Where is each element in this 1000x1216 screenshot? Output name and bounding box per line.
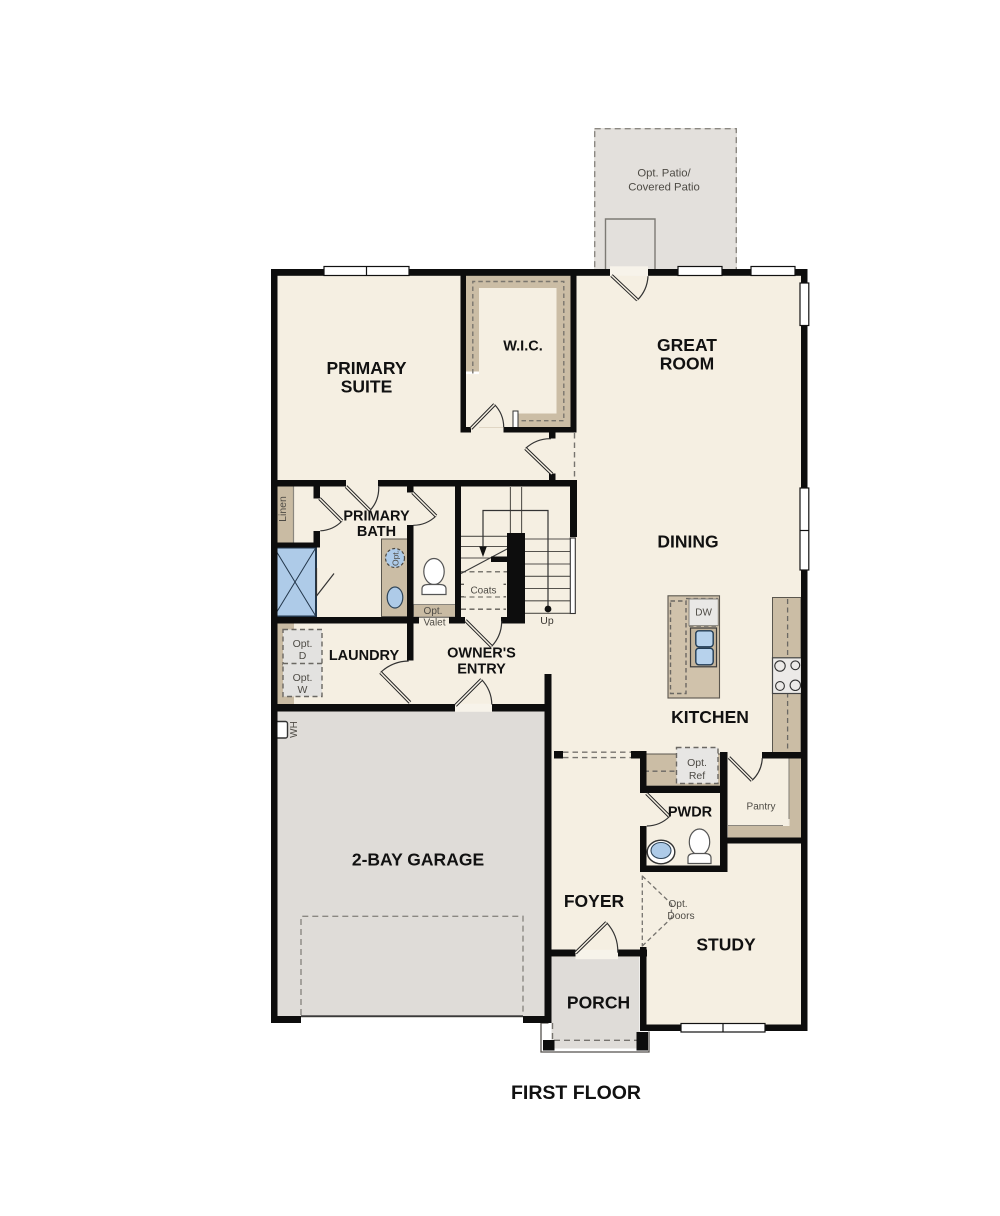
svg-text:Valet: Valet — [423, 618, 445, 629]
svg-text:LAUNDRY: LAUNDRY — [329, 648, 400, 664]
svg-text:PRIMARY: PRIMARY — [343, 509, 410, 525]
svg-text:Opt.: Opt. — [687, 757, 707, 769]
svg-text:STUDY: STUDY — [696, 935, 756, 955]
svg-text:BATH: BATH — [357, 524, 396, 540]
svg-text:OWNER'S: OWNER'S — [447, 646, 516, 662]
svg-text:Opt.: Opt. — [424, 606, 443, 617]
svg-text:KITCHEN: KITCHEN — [671, 707, 749, 727]
svg-text:Opt. Patio/: Opt. Patio/ — [637, 168, 691, 180]
svg-text:SUITE: SUITE — [341, 377, 393, 397]
svg-text:FIRST FLOOR: FIRST FLOOR — [511, 1082, 641, 1104]
svg-text:Ref: Ref — [689, 770, 705, 782]
svg-text:Doors: Doors — [667, 911, 694, 922]
svg-text:2-BAY GARAGE: 2-BAY GARAGE — [352, 850, 484, 870]
svg-text:FOYER: FOYER — [564, 891, 625, 911]
svg-text:Opt.: Opt. — [293, 672, 313, 684]
svg-text:ENTRY: ENTRY — [457, 662, 506, 678]
svg-text:DINING: DINING — [657, 532, 718, 552]
svg-text:Up: Up — [540, 615, 554, 627]
svg-text:GREAT: GREAT — [657, 335, 717, 355]
svg-text:Opt.: Opt. — [293, 638, 313, 650]
svg-text:PORCH: PORCH — [567, 993, 630, 1013]
svg-text:Pantry: Pantry — [747, 802, 776, 813]
svg-text:W.I.C.: W.I.C. — [503, 339, 542, 355]
svg-text:Opt.: Opt. — [391, 550, 401, 566]
svg-text:DW: DW — [695, 608, 712, 619]
svg-text:PRIMARY: PRIMARY — [326, 358, 406, 378]
svg-text:PWDR: PWDR — [668, 805, 713, 821]
svg-text:W: W — [298, 684, 308, 696]
svg-text:D: D — [299, 650, 307, 662]
svg-text:WH: WH — [289, 721, 300, 738]
svg-text:Opt.: Opt. — [668, 899, 687, 910]
svg-text:Coats: Coats — [470, 586, 496, 597]
svg-text:ROOM: ROOM — [660, 354, 714, 374]
svg-text:Covered Patio: Covered Patio — [628, 182, 700, 194]
svg-text:Linen: Linen — [277, 496, 289, 522]
